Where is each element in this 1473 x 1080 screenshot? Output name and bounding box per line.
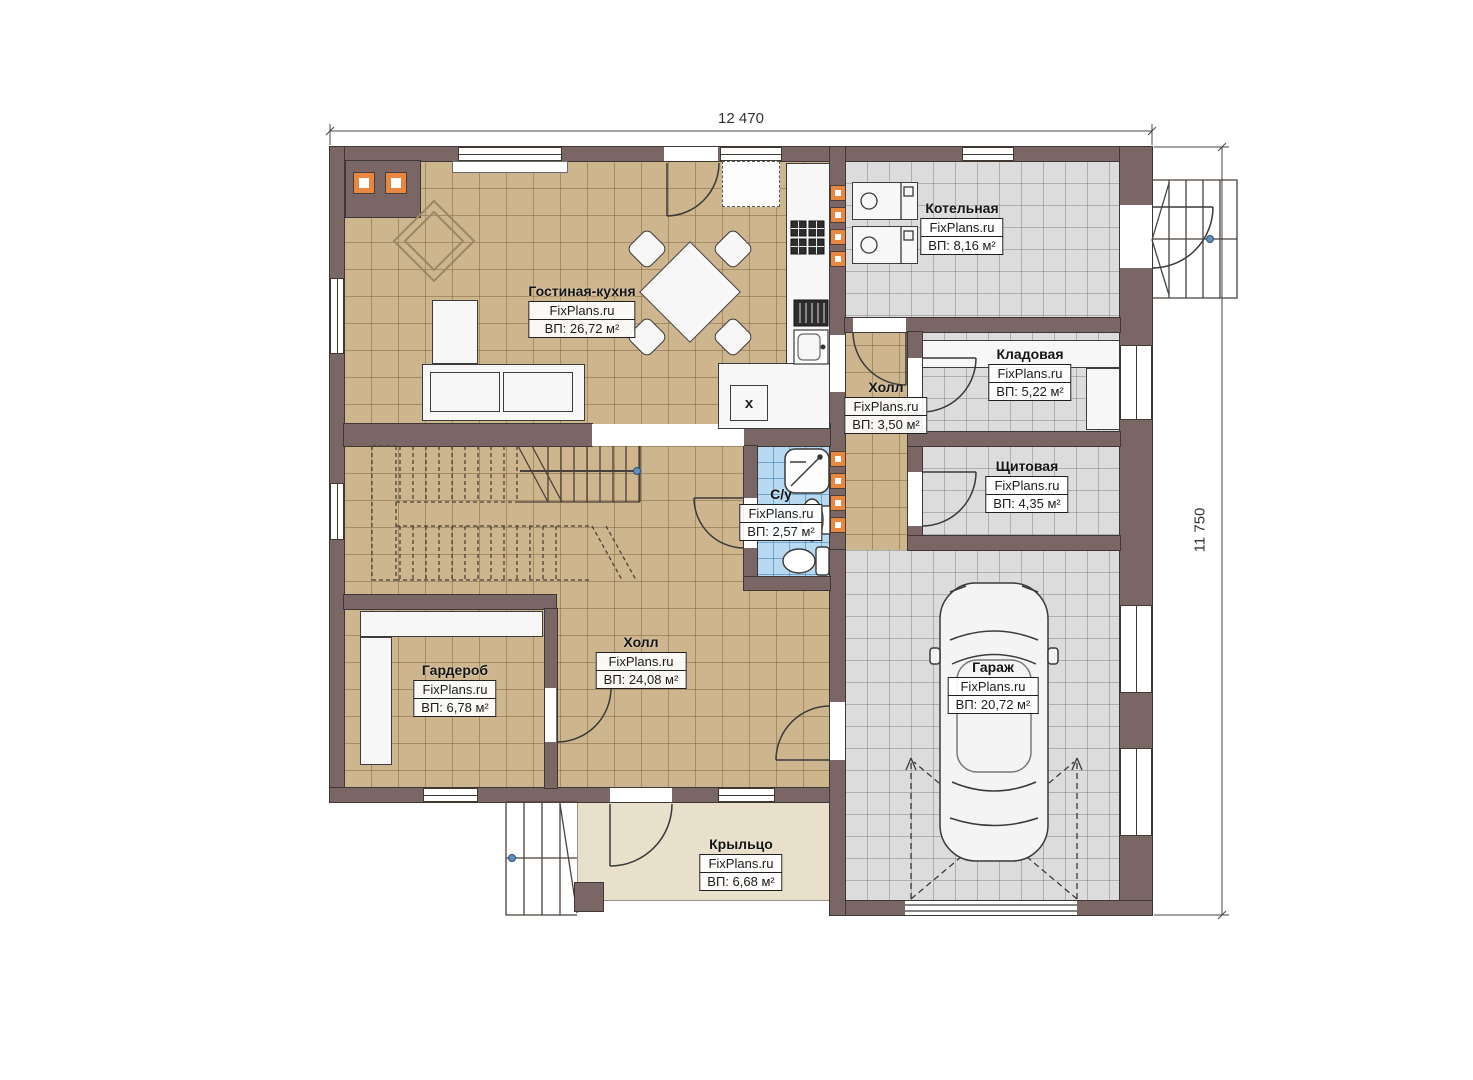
window-storage-right bbox=[1120, 345, 1152, 420]
room-label-hall-main: Холл FixPlans.ru ВП: 24,08 м² bbox=[596, 634, 687, 689]
dimension-width: 12 470 bbox=[718, 110, 764, 127]
vent-icon bbox=[831, 474, 845, 488]
room-area: ВП: 24,08 м² bbox=[596, 671, 687, 689]
wall-storage-electrical bbox=[908, 432, 1120, 446]
watermark: FixPlans.ru bbox=[739, 504, 822, 523]
watermark: FixPlans.ru bbox=[920, 218, 1003, 237]
room-label-boiler: Котельная FixPlans.ru ВП: 8,16 м² bbox=[920, 200, 1003, 255]
room-name: Крыльцо bbox=[699, 836, 782, 852]
watermark: FixPlans.ru bbox=[699, 854, 782, 873]
opening-garage-gate bbox=[905, 901, 1077, 915]
watermark: FixPlans.ru bbox=[948, 677, 1039, 696]
room-name: Гардероб bbox=[413, 662, 496, 678]
wall-electrical-south bbox=[908, 536, 1120, 550]
room-name: Щитовая bbox=[985, 458, 1068, 474]
opening-boiler-ext-door bbox=[1120, 205, 1152, 268]
room-label-hall-small: Холл FixPlans.ru ВП: 3,50 м² bbox=[844, 379, 927, 434]
window-wardrobe-bottom bbox=[423, 788, 478, 802]
watermark: FixPlans.ru bbox=[596, 652, 687, 671]
room-area: ВП: 6,78 м² bbox=[413, 699, 496, 717]
exterior-stair-porch bbox=[506, 802, 577, 915]
sofa-cushion bbox=[430, 372, 500, 412]
watermark: FixPlans.ru bbox=[844, 397, 927, 416]
opening-boiler-hall-door bbox=[853, 318, 906, 332]
washing-machine: x bbox=[730, 385, 768, 421]
room-name: Гараж bbox=[948, 659, 1039, 675]
storage-shelf-right bbox=[1086, 368, 1120, 430]
vent-icon bbox=[831, 208, 845, 222]
room-area: ВП: 20,72 м² bbox=[948, 696, 1039, 714]
room-label-bathroom: С/у FixPlans.ru ВП: 2,57 м² bbox=[739, 486, 822, 541]
window-boiler-top bbox=[962, 147, 1014, 161]
window-hall-bottom bbox=[718, 788, 775, 802]
room-area: ВП: 2,57 м² bbox=[739, 523, 822, 541]
floor-plan: x bbox=[0, 0, 1473, 1080]
wall-living-south bbox=[344, 424, 592, 446]
opening-living-top-door bbox=[664, 147, 718, 161]
room-area: ВП: 8,16 м² bbox=[920, 237, 1003, 255]
dimension-height: 11 750 bbox=[1192, 508, 1209, 553]
room-label-wardrobe: Гардероб FixPlans.ru ВП: 6,78 м² bbox=[413, 662, 496, 717]
room-area: ВП: 4,35 м² bbox=[985, 495, 1068, 513]
room-area: ВП: 5,22 м² bbox=[988, 383, 1071, 401]
room-label-storage: Кладовая FixPlans.ru ВП: 5,22 м² bbox=[988, 346, 1071, 401]
opening-electrical-door bbox=[908, 472, 922, 526]
window-garage-right-1 bbox=[1120, 605, 1152, 693]
room-name: С/у bbox=[739, 486, 822, 502]
room-label-living-kitchen: Гостиная-кухня FixPlans.ru ВП: 26,72 м² bbox=[528, 283, 635, 338]
room-name: Кладовая bbox=[988, 346, 1071, 362]
watermark: FixPlans.ru bbox=[528, 301, 635, 320]
room-label-electrical: Щитовая FixPlans.ru ВП: 4,35 м² bbox=[985, 458, 1068, 513]
wall-bath-bottom bbox=[744, 577, 830, 590]
sofa-side bbox=[432, 300, 478, 364]
vent-icon bbox=[831, 252, 845, 266]
opening-porch-door bbox=[610, 788, 672, 802]
window-living-left bbox=[330, 278, 344, 354]
vent-icon bbox=[386, 173, 406, 193]
room-area: ВП: 3,50 м² bbox=[844, 416, 927, 434]
watermark: FixPlans.ru bbox=[988, 364, 1071, 383]
window-sill-living bbox=[452, 161, 568, 173]
watermark: FixPlans.ru bbox=[985, 476, 1068, 495]
wardrobe-shelf-left bbox=[360, 637, 392, 765]
boiler-unit bbox=[852, 182, 918, 220]
porch-post bbox=[575, 883, 603, 911]
vent-icon bbox=[831, 496, 845, 510]
vent-icon bbox=[831, 230, 845, 244]
room-name: Котельная bbox=[920, 200, 1003, 216]
wall-left bbox=[330, 147, 344, 802]
vent-icon bbox=[831, 452, 845, 466]
opening-hall-garage-door bbox=[830, 702, 845, 760]
window-garage-right-2 bbox=[1120, 748, 1152, 836]
vent-icon bbox=[831, 518, 845, 532]
room-name: Холл bbox=[596, 634, 687, 650]
kitchen-cabinet-top bbox=[722, 161, 780, 207]
floor-garage bbox=[845, 550, 1120, 901]
exterior-stair-boiler bbox=[1152, 180, 1237, 298]
boiler-unit bbox=[852, 226, 918, 264]
room-name: Холл bbox=[844, 379, 927, 395]
opening-wardrobe-door bbox=[545, 688, 557, 742]
room-area: ВП: 6,68 м² bbox=[699, 873, 782, 891]
sofa-cushion bbox=[503, 372, 573, 412]
watermark: FixPlans.ru bbox=[413, 680, 496, 699]
vent-icon bbox=[354, 173, 374, 193]
window-stairs-left bbox=[330, 483, 344, 540]
wall-wardrobe-top bbox=[344, 595, 556, 609]
window-kitchen-top bbox=[720, 147, 782, 161]
room-area: ВП: 26,72 м² bbox=[528, 320, 635, 338]
room-name: Гостиная-кухня bbox=[528, 283, 635, 299]
room-label-garage: Гараж FixPlans.ru ВП: 20,72 м² bbox=[948, 659, 1039, 714]
opening-kitchen-hall bbox=[830, 335, 845, 392]
vent-icon bbox=[831, 186, 845, 200]
room-label-porch: Крыльцо FixPlans.ru ВП: 6,68 м² bbox=[699, 836, 782, 891]
wardrobe-shelf-top bbox=[360, 611, 543, 637]
door-boiler-exterior bbox=[1152, 207, 1213, 268]
window-living-top bbox=[458, 147, 562, 161]
